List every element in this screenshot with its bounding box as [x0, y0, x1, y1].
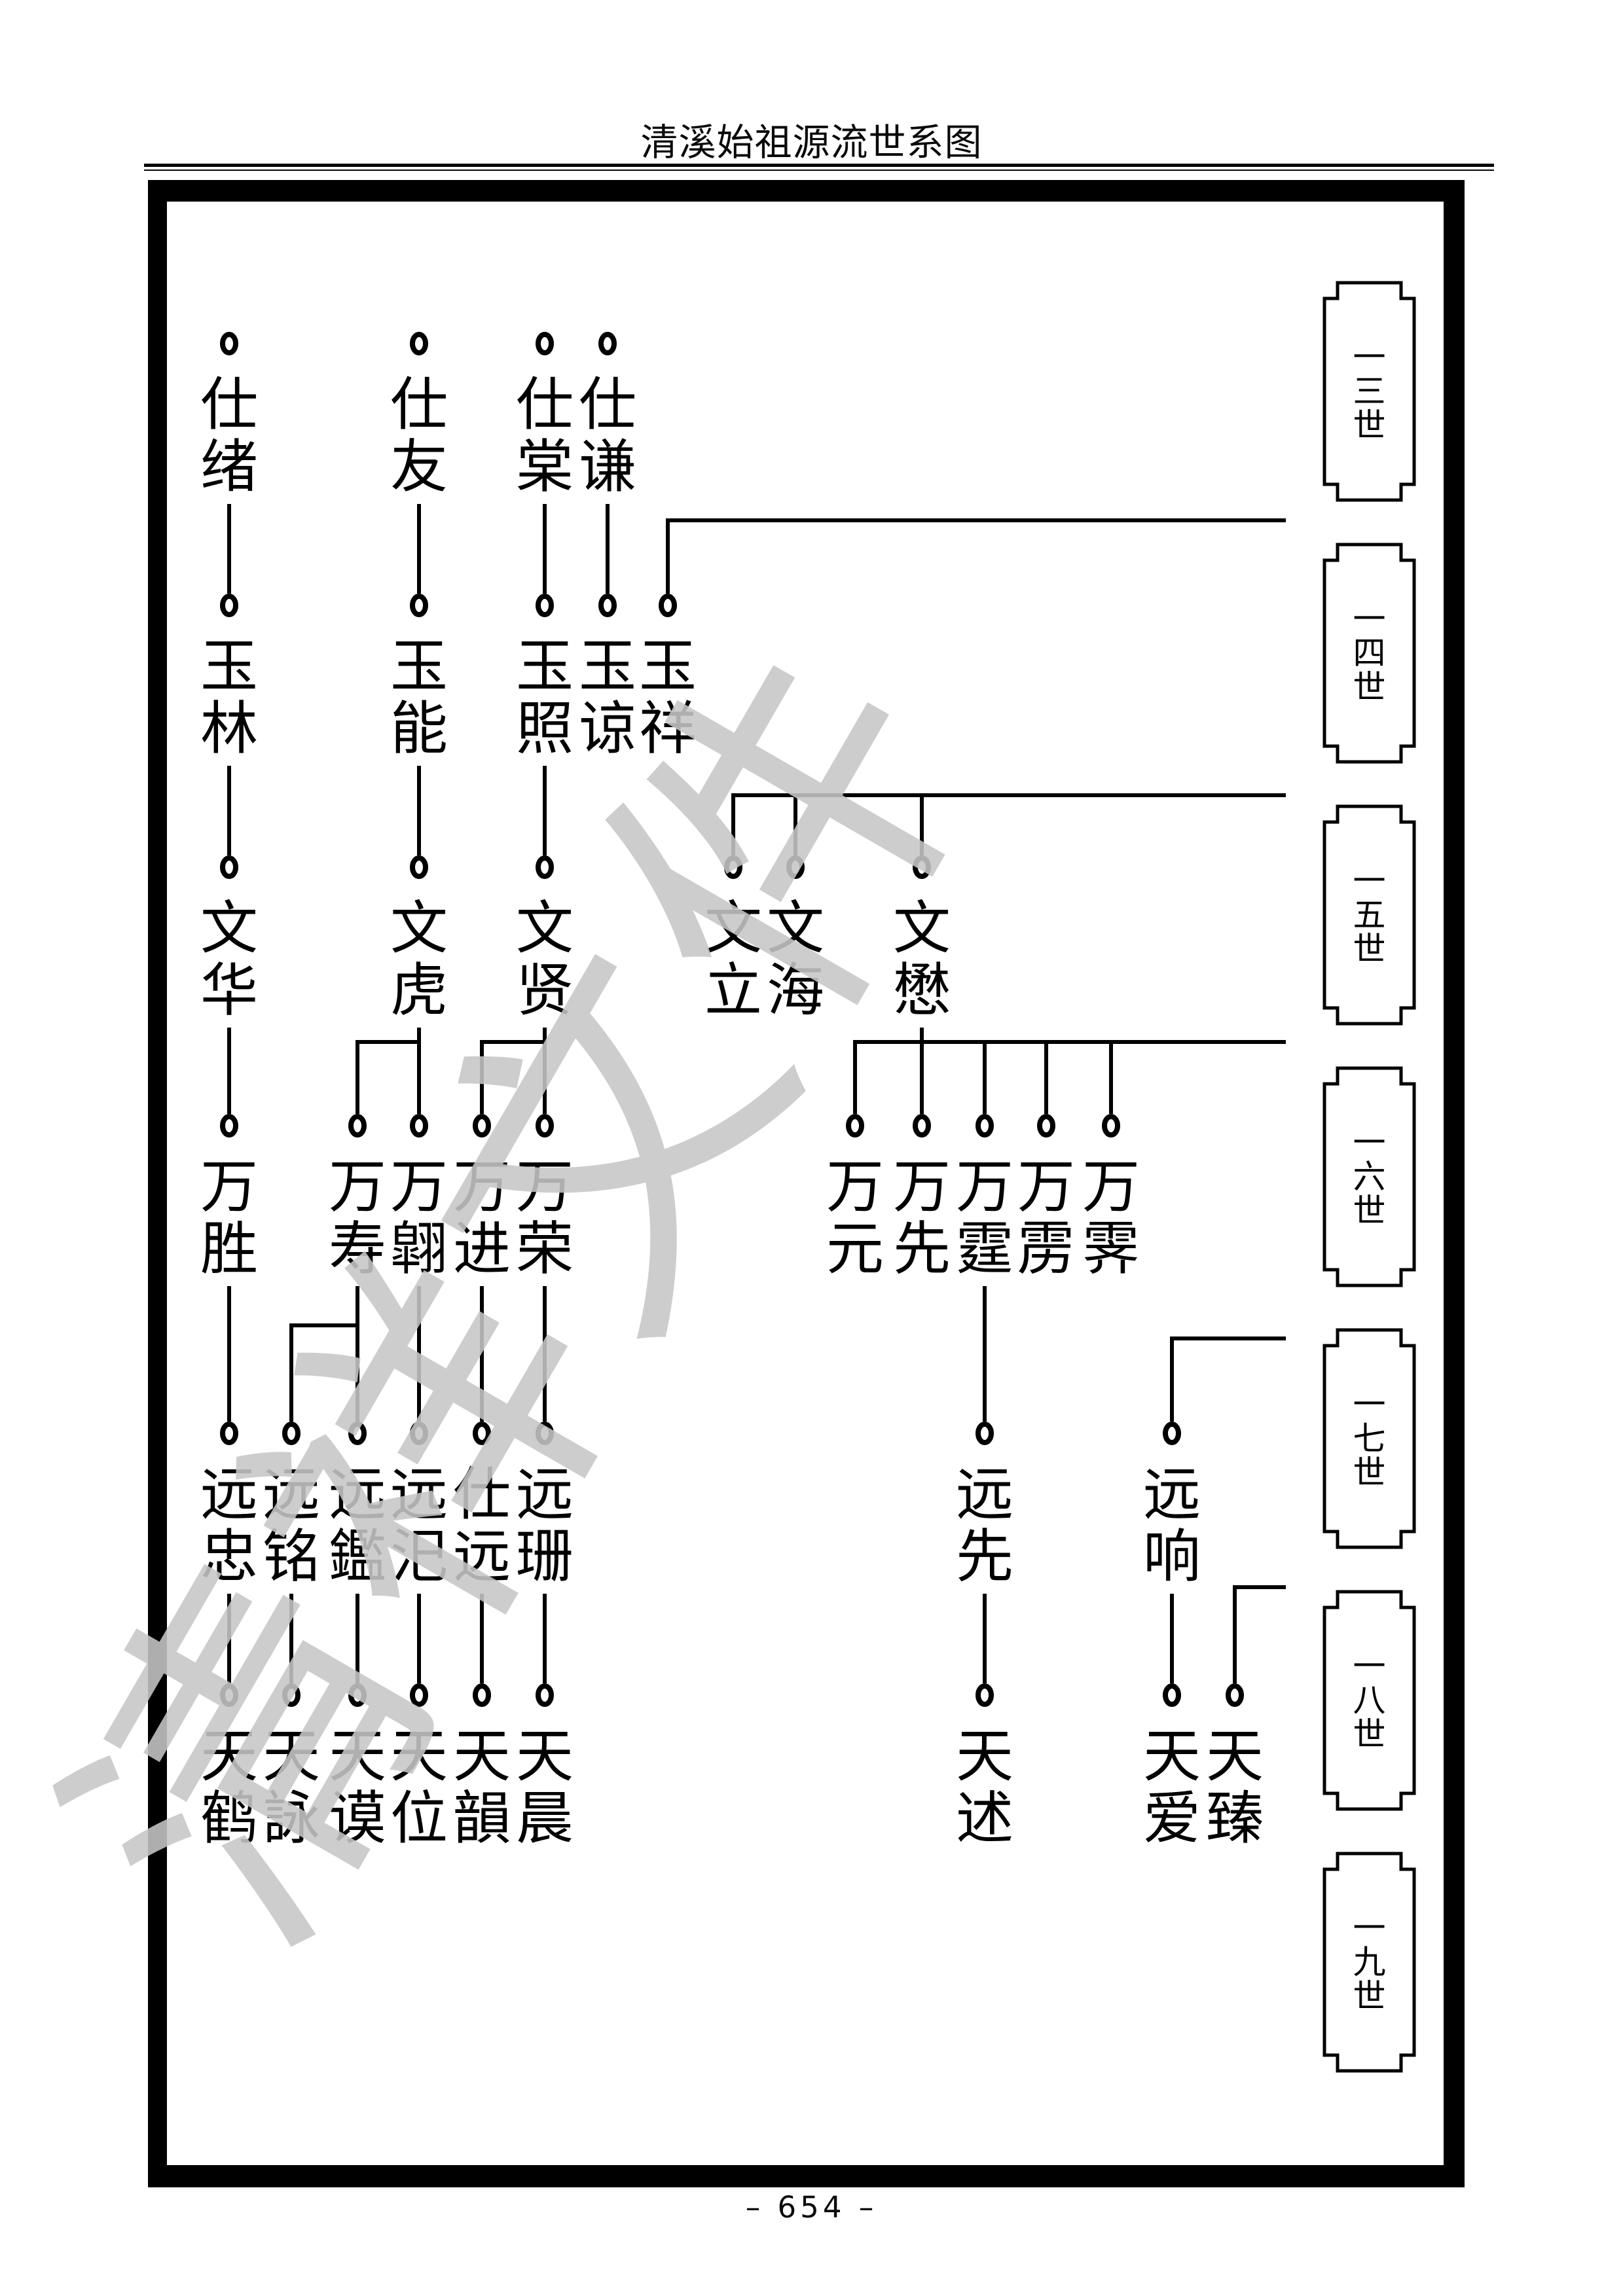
person-name-char: 谦 [579, 437, 636, 500]
person-circle-icon [223, 334, 236, 353]
person-circle-icon [978, 1686, 991, 1704]
person-node: 仕谦 [579, 334, 636, 500]
person-circle-icon [978, 1424, 991, 1443]
generation-label-column: 一三世一四世一五世一六世一七世一八世一九世 [1324, 283, 1414, 2071]
person-name-char: 爱 [1143, 1788, 1201, 1852]
person-node: 仕友 [390, 334, 448, 500]
person-circle-icon [538, 1686, 551, 1704]
person-circle-icon [848, 1117, 862, 1135]
person-circle-icon [601, 334, 614, 353]
person-name-char: 天 [1143, 1726, 1201, 1789]
person-name-char: 友 [390, 437, 448, 500]
person-node: 文华 [200, 858, 258, 1024]
person-circle-icon [351, 1117, 364, 1135]
generation-label-box: 一九世 [1324, 1854, 1414, 2071]
generation-label-char: 世 [1353, 1716, 1386, 1753]
person-circle-icon [223, 596, 236, 615]
person-name-char: 棠 [516, 437, 574, 500]
person-name-char: 元 [826, 1219, 884, 1282]
frame-top-band [148, 180, 1465, 202]
generation-label-char: 五 [1353, 897, 1386, 933]
generation-label-char: 六 [1353, 1158, 1386, 1195]
frame-right-band [1444, 180, 1465, 2187]
person-name-char: 玉 [200, 636, 258, 700]
person-node: 天爱 [1143, 1686, 1201, 1852]
person-name-char: 先 [956, 1526, 1013, 1590]
generation-label-box: 一八世 [1324, 1592, 1414, 1809]
person-name-char: 文 [390, 898, 448, 961]
person-name-char: 胜 [200, 1219, 258, 1282]
person-name-char: 万 [826, 1157, 884, 1220]
person-node: 远响 [1143, 1424, 1201, 1590]
person-circle-icon [412, 858, 426, 876]
person-name-char: 韻 [453, 1788, 511, 1852]
person-node: 玉林 [200, 596, 258, 762]
generation-label-char: 世 [1353, 669, 1386, 706]
person-node: 万霆 [956, 1117, 1013, 1282]
generation-label-char: 一 [1353, 1910, 1386, 1946]
person-name-char: 虎 [390, 960, 448, 1024]
person-name-char: 照 [516, 698, 574, 762]
person-circle-icon [223, 858, 236, 876]
person-name-char: 万 [1082, 1157, 1140, 1220]
page-number: – 654 – [0, 2190, 1623, 2225]
person-node: 万元 [826, 1117, 884, 1282]
person-name-char: 仕 [390, 374, 448, 438]
person-node: 天晨 [516, 1686, 574, 1852]
person-node: 天述 [956, 1686, 1013, 1852]
person-node: 玉照 [516, 596, 574, 762]
person-node: 仕棠 [516, 334, 574, 500]
generation-label-char: 世 [1353, 407, 1386, 444]
person-node: 远先 [956, 1424, 1013, 1590]
person-circle-icon [538, 858, 551, 876]
generation-label-box: 一四世 [1324, 545, 1414, 762]
person-node: 万霁 [1082, 1117, 1140, 1282]
person-name-char: 仕 [579, 374, 636, 438]
generation-label-box: 一五世 [1324, 806, 1414, 1024]
person-name-char: 玉 [390, 636, 448, 700]
generation-label-char: 八 [1353, 1682, 1386, 1719]
person-name-char: 绪 [200, 437, 258, 500]
person-name-char: 文 [200, 898, 258, 961]
person-circle-icon [1228, 1686, 1241, 1704]
person-circle-icon [978, 1117, 991, 1135]
genealogy-page: 清溪始祖源流世系图 仕绪仕友仕棠仕谦玉林玉能玉照玉谅玉祥文华文虎文贤文立文海文懋… [0, 0, 1623, 2296]
person-name-char: 能 [390, 698, 448, 762]
person-name-char: 天 [1206, 1726, 1264, 1789]
person-circle-icon [601, 596, 614, 615]
family-tree-canvas: 仕绪仕友仕棠仕谦玉林玉能玉照玉谅玉祥文华文虎文贤文立文海文懋万胜万寿万翶万进万荣… [0, 0, 1623, 2296]
generation-label-char: 三 [1353, 373, 1386, 410]
generation-label-char: 一 [1353, 339, 1386, 376]
person-name-char: 霁 [1082, 1219, 1140, 1282]
person-name-char: 玉 [579, 636, 636, 700]
frame-bottom-band [148, 2165, 1465, 2187]
generation-label-char: 世 [1353, 1193, 1386, 1229]
generation-label-char: 世 [1353, 931, 1386, 967]
generation-label-char: 世 [1353, 1978, 1386, 2015]
generation-label-char: 四 [1353, 635, 1386, 672]
generation-label-char: 七 [1353, 1420, 1386, 1457]
generation-label-box: 一七世 [1324, 1330, 1414, 1547]
person-name-char: 臻 [1206, 1788, 1264, 1852]
generation-label-char: 九 [1353, 1944, 1386, 1981]
person-name-char: 远 [1143, 1464, 1201, 1528]
person-name-char: 万 [200, 1157, 258, 1220]
person-circle-icon [1165, 1424, 1178, 1443]
person-name-char: 天 [516, 1726, 574, 1789]
generation-label-char: 一 [1353, 1648, 1386, 1685]
person-node: 仕绪 [200, 334, 258, 500]
person-name-char: 先 [893, 1219, 951, 1282]
person-name-char: 华 [200, 960, 258, 1024]
person-circle-icon [1165, 1686, 1178, 1704]
generation-label-char: 一 [1353, 1124, 1386, 1161]
person-circle-icon [538, 596, 551, 615]
person-circle-icon [538, 334, 551, 353]
person-name-char: 玉 [516, 636, 574, 700]
person-circle-icon [412, 596, 426, 615]
person-name-char: 万 [956, 1157, 1013, 1220]
generation-label-box: 一三世 [1324, 283, 1414, 500]
person-name-char: 响 [1143, 1526, 1201, 1590]
person-circle-icon [412, 334, 426, 353]
person-node: 万雳 [1017, 1117, 1075, 1282]
person-node: 天臻 [1206, 1686, 1264, 1852]
person-circle-icon [1040, 1117, 1053, 1135]
person-name-char: 晨 [516, 1788, 574, 1852]
person-node: 万先 [893, 1117, 951, 1282]
person-node: 玉谅 [579, 596, 636, 762]
generation-label-char: 世 [1353, 1454, 1386, 1491]
generation-label-box: 一六世 [1324, 1068, 1414, 1285]
person-name-char: 万 [893, 1157, 951, 1220]
person-name-char: 林 [200, 698, 258, 762]
person-node: 玉能 [390, 596, 448, 762]
generation-label-char: 一 [1353, 601, 1386, 637]
person-circle-icon [915, 1117, 928, 1135]
generation-label-char: 一 [1353, 1386, 1386, 1423]
person-name-char: 远 [956, 1464, 1013, 1528]
person-name-char: 天 [956, 1726, 1013, 1789]
person-circle-icon [223, 1117, 236, 1135]
person-node: 万胜 [200, 1117, 258, 1282]
person-name-char: 仕 [200, 374, 258, 438]
person-name-char: 述 [956, 1788, 1013, 1852]
person-name-char: 仕 [516, 374, 574, 438]
person-circle-icon [661, 596, 674, 615]
generation-label-char: 一 [1353, 863, 1386, 899]
person-circle-icon [1104, 1117, 1118, 1135]
person-node: 文虎 [390, 858, 448, 1024]
person-name-char: 雳 [1017, 1219, 1075, 1282]
person-name-char: 万 [1017, 1157, 1075, 1220]
person-name-char: 霆 [956, 1219, 1013, 1282]
